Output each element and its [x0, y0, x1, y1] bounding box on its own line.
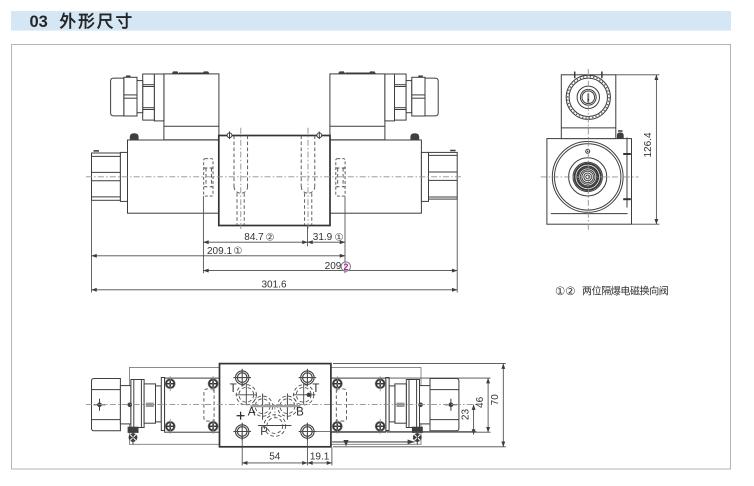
svg-text:54: 54: [269, 452, 281, 463]
svg-text:两位隔爆电磁换向阀: 两位隔爆电磁换向阀: [582, 285, 669, 298]
svg-text:84.7: 84.7: [244, 232, 264, 243]
svg-text:209: 209: [325, 261, 342, 272]
svg-text:19.1: 19.1: [310, 452, 330, 463]
svg-text:23: 23: [461, 409, 472, 421]
svg-text:46: 46: [475, 396, 486, 408]
svg-text:T: T: [230, 383, 237, 395]
svg-text:209.1: 209.1: [207, 246, 232, 257]
svg-text:①: ①: [233, 246, 242, 257]
svg-text:A: A: [248, 407, 256, 419]
svg-text:301.6: 301.6: [261, 279, 286, 290]
svg-text:T: T: [312, 383, 319, 395]
svg-text:126.4: 126.4: [643, 132, 654, 157]
svg-text:①: ①: [335, 232, 344, 243]
svg-text:①②: ①②: [555, 286, 576, 298]
svg-text:B: B: [296, 407, 304, 419]
svg-text:②: ②: [266, 232, 275, 243]
svg-text:2: 2: [344, 262, 349, 272]
svg-text:P: P: [260, 426, 268, 438]
svg-text:外形尺寸: 外形尺寸: [60, 11, 135, 31]
svg-text:70: 70: [490, 394, 501, 406]
svg-text:31.9: 31.9: [313, 232, 333, 243]
svg-text:03: 03: [30, 13, 48, 31]
